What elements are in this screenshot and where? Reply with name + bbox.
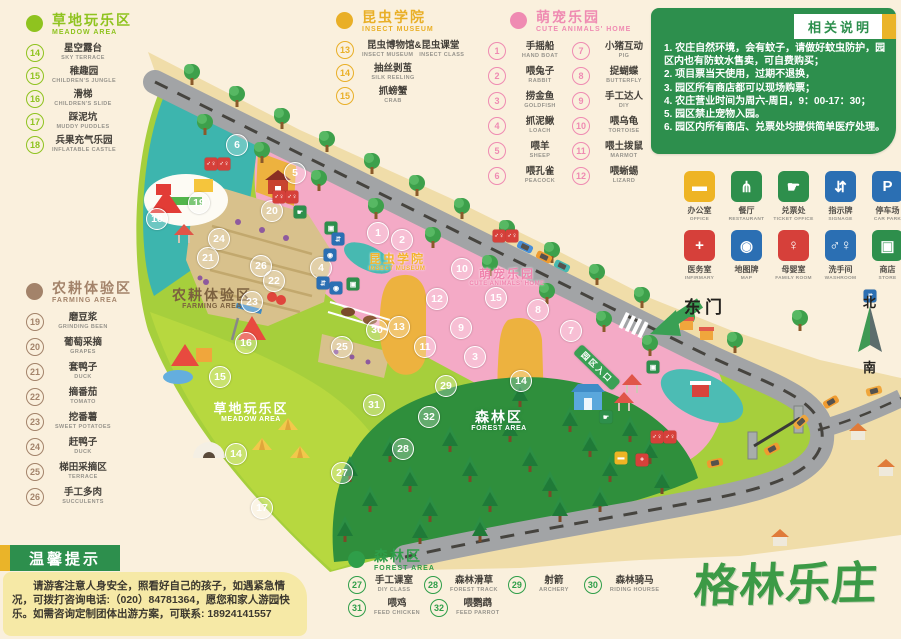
map-marker: 14 [510, 370, 532, 392]
map-marker: 15 [485, 287, 507, 309]
facility-mini-icon: ♂♀ [286, 191, 299, 204]
map-area-label: 萌宠乐园 CUTE ANIMALS' HOME [469, 268, 544, 288]
legend-item: 2 喂兔子RABBIT [488, 64, 566, 89]
insect-dot-icon [336, 12, 353, 29]
map-marker: 2 [391, 229, 413, 251]
map-marker: 5 [284, 162, 306, 184]
legend-item: 9 手工达人DIY [572, 89, 650, 114]
legend-item: 6 喂孔雀PEACOCK [488, 164, 566, 189]
notice-line: 6. 园区内所有商店、兑票处均提供简单医疗处理。 [664, 121, 888, 134]
legend-item: 15 稚趣园CHILDREN'S JUNGLE [26, 65, 132, 88]
facility-icon: ♂♀ [825, 230, 856, 261]
legend-forest: 森林区 FOREST AREA 27 手工课室DIY CLASS 28 森林滑草… [348, 549, 688, 619]
facility-mini-icon: ▣ [647, 361, 660, 374]
map-marker: 3 [464, 346, 486, 368]
park-logo: 格林乐庄 [674, 546, 899, 615]
related-notes-panel: 相关说明 1. 农庄自然环境，会有蚊子，请做好蚊虫防护，园区内也有防蚊水售卖，可… [651, 8, 896, 154]
farming-dot-icon [26, 283, 43, 300]
facility-item: + 医务室 INFIRMARY [676, 230, 723, 289]
tips-text: 请游客注意人身安全，照看好自己的孩子，如遇紧急情况，可拨打咨询电话:（020）8… [12, 579, 298, 621]
legend-item: 16 滑梯CHILDREN'S SLIDE [26, 88, 132, 111]
map-marker: 29 [435, 375, 457, 397]
legend-item: 24 赶鸭子DUCK [26, 435, 132, 460]
legend-item: 8 捉蝴蝶BUTTERFLY [572, 64, 650, 89]
map-marker: 1 [367, 222, 389, 244]
map-marker: 11 [414, 336, 436, 358]
legend-farming: 农耕体验区 FARMING AREA 19 磨豆浆GRINDING BEEN 2… [26, 281, 132, 510]
tips-accent-bar [0, 545, 10, 571]
legend-item: 11 喂土拨鼠MARMOT [572, 139, 650, 164]
facility-item: P 停车场 CAR PARK [864, 171, 901, 230]
compass-north-label: 北 [863, 292, 876, 311]
legend-item: 7 小猪互动PIG [572, 39, 650, 64]
legend-item: 31 喂鸡FEED CHICKEN [348, 598, 420, 619]
map-marker: 12 [426, 288, 448, 310]
facility-item: ♀ 母婴室 FAMILY ROOM [770, 230, 817, 289]
forest-dot-icon [348, 551, 365, 568]
facility-mini-icon: + [636, 454, 649, 467]
compass-icon [858, 306, 882, 352]
legend-pets-subtitle: CUTE ANIMALS' HOME [536, 26, 631, 33]
legend-item: 3 捞金鱼GOLDFISH [488, 89, 566, 114]
legend-item: 14 抽丝剥茧SILK REELING [336, 62, 464, 85]
facility-mini-icon: ◉ [324, 249, 337, 262]
map-marker: 26 [250, 255, 272, 277]
compass-south-label: 南 [863, 357, 876, 376]
legend-pets-title: 萌宠乐园 [536, 10, 631, 25]
legend-item: 1 手摇船HAND BOAT [488, 39, 566, 64]
legend-item: 17 踩泥坑MUDDY PUDDLES [26, 111, 132, 134]
facility-icon: P [872, 171, 901, 202]
legend-meadow-subtitle: MEADOW AREA [52, 29, 132, 36]
legend-forest-title: 森林区 [374, 549, 435, 564]
facility-item: ▣ 商店 STORE [864, 230, 901, 289]
facility-mini-icon: ♂♀ [651, 431, 664, 444]
map-marker: 32 [418, 406, 440, 428]
legend-farming-title: 农耕体验区 [52, 281, 132, 296]
map-area-label: 农耕体验区 FARMING AREA [172, 288, 252, 311]
map-marker: 17 [251, 497, 273, 519]
pets-dot-icon [510, 12, 527, 29]
facility-mini-icon: ⇵ [332, 233, 345, 246]
east-gate-label: 东门 [684, 293, 726, 318]
legend-item: 18 兵果充气乐园INFLATABLE CASTLE [26, 134, 132, 157]
map-marker: 25 [331, 336, 353, 358]
legend-item: 25 梯田采摘区TERRACE [26, 460, 132, 485]
facility-mini-icon: ♂♀ [664, 431, 677, 444]
facility-mini-icon: ▬ [615, 452, 628, 465]
map-marker: 15 [209, 366, 231, 388]
legend-item: 21 套鸭子DUCK [26, 360, 132, 385]
map-marker: 31 [363, 394, 385, 416]
map-marker: 21 [197, 247, 219, 269]
facility-mini-icon: ☛ [600, 411, 613, 424]
tips-panel: 请游客注意人身安全，照看好自己的孩子，如遇紧急情况，可拨打咨询电话:（020）8… [3, 572, 307, 636]
map-marker: 10 [451, 258, 473, 280]
map-marker: 27 [331, 462, 353, 484]
legend-item: 10 喂乌龟TORTOISE [572, 114, 650, 139]
map-marker: 23 [241, 291, 263, 313]
tips-title: 温馨提示 [10, 545, 120, 571]
map-marker: 9 [450, 317, 472, 339]
legend-item: 15 抓螃蟹CRAB [336, 85, 464, 108]
legend-item: 19 磨豆浆GRINDING BEEN [26, 310, 132, 335]
facility-mini-icon: ♂♀ [218, 158, 231, 171]
facility-icon: ▣ [872, 230, 901, 261]
facility-legend: ▬ 办公室 OFFICE ⋔ 餐厅 RESTAURANT ☛ 兑票处 TICKE… [676, 171, 901, 289]
facility-icon: + [684, 230, 715, 261]
legend-item: 5 喂羊SHEEP [488, 139, 566, 164]
legend-insect-title: 昆虫学院 [362, 10, 434, 25]
legend-item: 13 昆虫博物馆&昆虫课堂INSECT MUSEUM INSECT CLASS [336, 39, 464, 62]
related-notes-title: 相关说明 [794, 14, 882, 39]
map-area-label: 森林区 FOREST AREA [471, 410, 526, 433]
meadow-dot-icon [26, 15, 43, 32]
legend-item: 20 葡萄采摘GRAPES [26, 335, 132, 360]
park-map-poster: 农耕体验区 FARMING AREA 草地玩乐区 MEADOW AREA 森林区… [0, 0, 901, 639]
facility-icon: ♀ [778, 230, 809, 261]
map-marker: 30 [366, 319, 388, 341]
facility-icon: ▬ [684, 171, 715, 202]
legend-pets: 萌宠乐园 CUTE ANIMALS' HOME 1 手摇船HAND BOAT 2… [488, 10, 650, 189]
legend-item: 22 摘番茄TOMATO [26, 385, 132, 410]
legend-item: 14 星空露台SKY TERRACE [26, 42, 132, 65]
legend-insect-subtitle: INSECT MUSEUM [362, 26, 434, 33]
map-marker: 7 [560, 320, 582, 342]
legend-forest-subtitle: FOREST AREA [374, 565, 435, 572]
notice-line: 2. 项目票当天使用，过期不退换， [664, 68, 888, 81]
map-marker: 28 [392, 438, 414, 460]
map-area-label: 昆虫学院 INSECT MUSEUM [369, 253, 426, 273]
facility-icon: ◉ [731, 230, 762, 261]
facility-item: ♂♀ 洗手间 WASHROOM [817, 230, 864, 289]
notice-line: 3. 园区所有商店都可以现场购票； [664, 82, 888, 95]
legend-item: 23 挖番薯SWEET POTATOES [26, 410, 132, 435]
related-notes-text: 1. 农庄自然环境，会有蚊子，请做好蚊虫防护，园区内也有防蚊水售卖，可自费购买；… [664, 42, 888, 134]
map-marker: 13 [388, 316, 410, 338]
legend-item: 30 森林骑马RIDING HOURSE [584, 575, 660, 596]
legend-item: 26 手工多肉SUCCULENTS [26, 485, 132, 510]
legend-farming-subtitle: FARMING AREA [52, 297, 132, 304]
map-area-label: 草地玩乐区 MEADOW AREA [213, 402, 288, 424]
notice-line: 4. 农庄营业时间为周六-周日，9：00-17：30； [664, 95, 888, 108]
facility-mini-icon: ◉ [330, 282, 343, 295]
facility-item: ⋔ 餐厅 RESTAURANT [723, 171, 770, 230]
facility-item: ⇵ 指示牌 SIGNAGE [817, 171, 864, 230]
legend-item: 32 喂鹦鹉FEED PARROT [430, 598, 499, 619]
facility-mini-icon: ▣ [347, 278, 360, 291]
facility-mini-icon: ♂♀ [506, 230, 519, 243]
map-marker: 18 [146, 208, 168, 230]
legend-insect: 昆虫学院 INSECT MUSEUM 13 昆虫博物馆&昆虫课堂INSECT M… [336, 10, 464, 108]
facility-icon: ⋔ [731, 171, 762, 202]
legend-item: 29 射箭ARCHERY [508, 575, 574, 596]
facility-item: ◉ 地图牌 MAP [723, 230, 770, 289]
facility-icon: ⇵ [825, 171, 856, 202]
legend-item: 12 喂蜥蜴LIZARD [572, 164, 650, 189]
facility-mini-icon: ♂♀ [493, 230, 506, 243]
map-marker: 8 [527, 299, 549, 321]
notice-line: 1. 农庄自然环境，会有蚊子，请做好蚊虫防护，园区内也有防蚊水售卖，可自费购买； [664, 42, 888, 68]
facility-mini-icon: ⇵ [317, 277, 330, 290]
snack-kiosk [690, 381, 711, 397]
map-marker: 6 [226, 134, 248, 156]
legend-item: 27 手工课室DIY CLASS [348, 575, 414, 596]
map-marker: 16 [235, 332, 257, 354]
legend-meadow-title: 草地玩乐区 [52, 13, 132, 28]
ticket-house [571, 384, 605, 410]
map-marker: 24 [208, 228, 230, 250]
notice-accent-bar [882, 14, 896, 39]
facility-item: ☛ 兑票处 TICKET OFFICE [770, 171, 817, 230]
legend-meadow: 草地玩乐区 MEADOW AREA 14 星空露台SKY TERRACE 15 … [26, 13, 132, 157]
map-marker: 19 [188, 192, 210, 214]
legend-item: 28 森林滑草FOREST TRACK [424, 575, 498, 596]
facility-mini-icon: ♂♀ [205, 158, 218, 171]
facility-item: ▬ 办公室 OFFICE [676, 171, 723, 230]
map-marker: 14 [225, 443, 247, 465]
facility-mini-icon: ♂♀ [273, 191, 286, 204]
notice-line: 5. 园区禁止宠物入园。 [664, 108, 888, 121]
facility-mini-icon: ☛ [294, 206, 307, 219]
facility-icon: ☛ [778, 171, 809, 202]
legend-item: 4 抓泥鳅LOACH [488, 114, 566, 139]
